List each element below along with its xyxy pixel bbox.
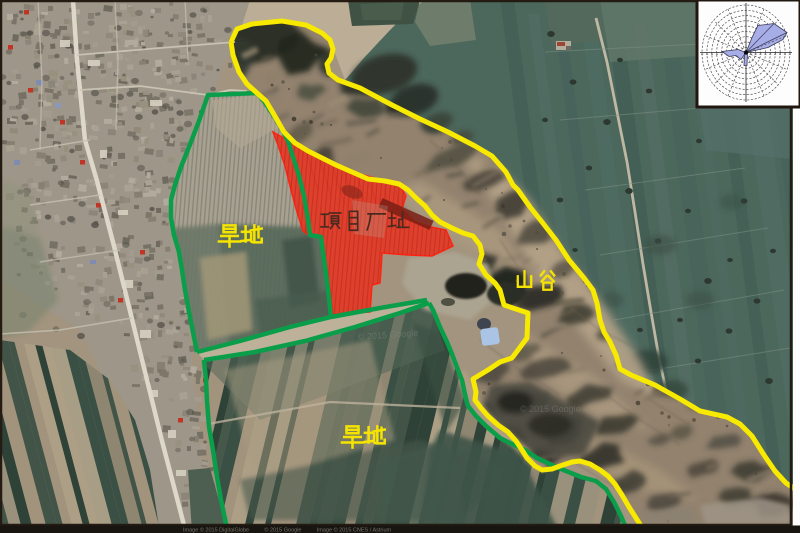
svg-text:© 2015 Google: © 2015 Google <box>520 404 581 414</box>
svg-text:Image © 2015 DigitalGlobe: Image © 2015 DigitalGlobe © 2015 Google … <box>183 527 392 533</box>
